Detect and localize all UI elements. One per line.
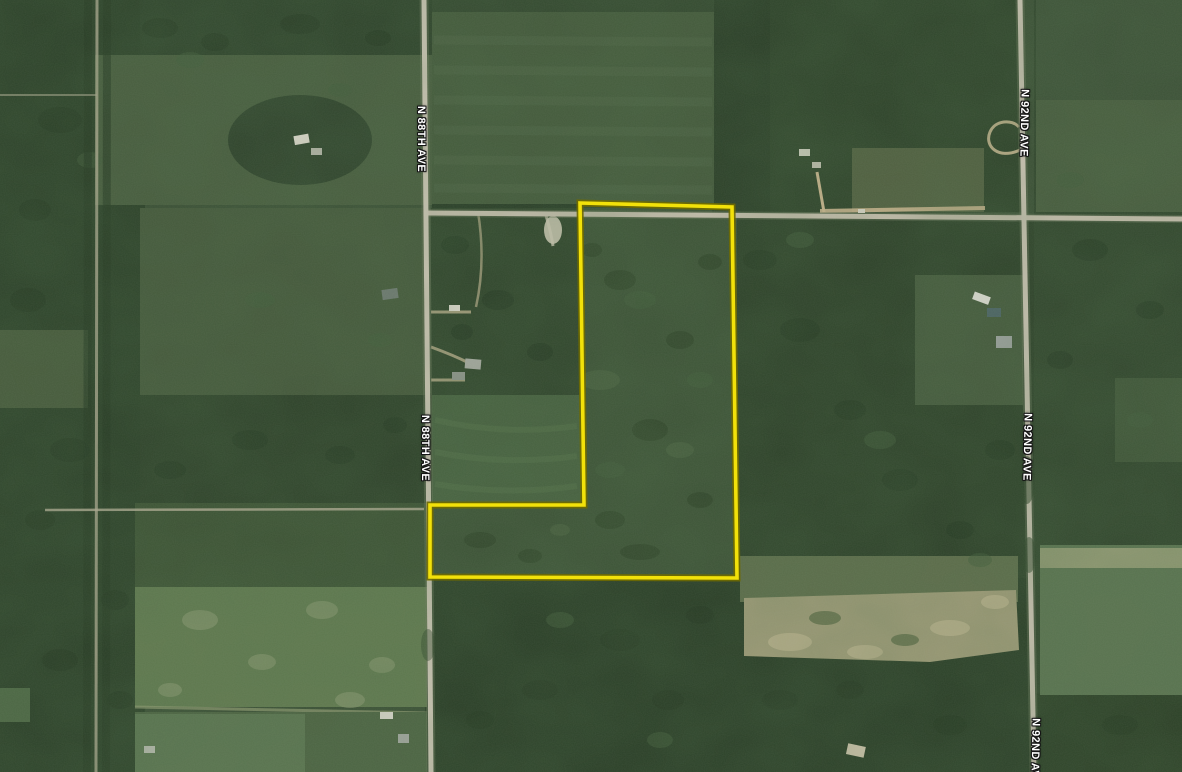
- aerial-imagery: [0, 0, 1182, 772]
- map-viewport[interactable]: N 88TH AVE N 88TH AVE N 92ND AVE N 92ND …: [0, 0, 1182, 772]
- imagery-noise: [0, 0, 1182, 772]
